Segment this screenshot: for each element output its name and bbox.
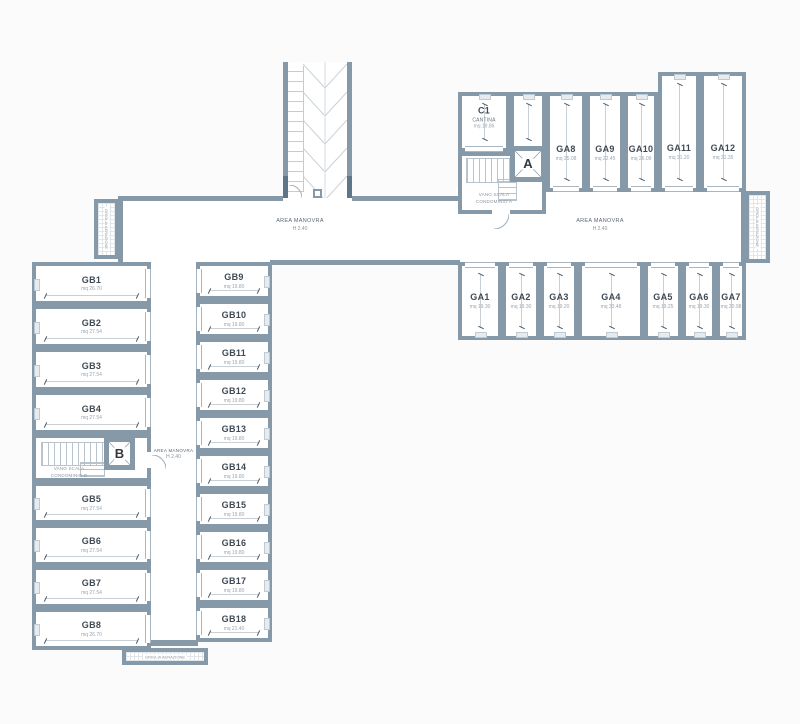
vent-mark [264, 618, 270, 630]
garage-door [145, 355, 151, 384]
room-label: GB6mq 27.54 [36, 536, 147, 554]
room-label: GA10mq 26.09 [628, 144, 654, 162]
dimension-line [45, 338, 138, 339]
garage-door [196, 345, 202, 369]
room-label: GB2mq 27.54 [36, 317, 147, 335]
garage-door [145, 531, 151, 559]
room-label: GB12mq 19.80 [200, 386, 268, 404]
corridor-label-left: AREA MANOVRA H 2.40 [240, 218, 360, 233]
garage-door [145, 573, 151, 601]
room-id: GB13 [200, 424, 268, 436]
garage-door [196, 497, 202, 521]
room-gb5: GB5mq 27.54 [32, 482, 151, 524]
stairwell-b: B VANO SCALA CONDOMINIO B [32, 434, 151, 482]
room-label: GA2mq 19.30 [506, 292, 536, 310]
garage-door [145, 489, 151, 517]
room-id: GB6 [36, 536, 147, 548]
dimension-line [209, 480, 259, 481]
room-label: GA11mq 31.20 [662, 143, 696, 161]
room-area: mq 19.80 [200, 398, 268, 405]
ramp [288, 62, 347, 198]
room-label: C1CANTINAmq 19.86 [462, 105, 506, 130]
room-label: GB16mq 19.80 [200, 538, 268, 556]
room-ga4: GA4mq 33.48 [578, 262, 644, 340]
garage-door [196, 269, 202, 293]
room-id: GB18 [200, 614, 268, 626]
room-label: GB3mq 27.54 [36, 360, 147, 378]
vent-mark [523, 94, 535, 100]
dimension-line [209, 556, 259, 557]
dimension-line [209, 632, 259, 633]
room-area: mq 21.40 [200, 626, 268, 633]
room-ga7: GA7mq 20.98 [716, 262, 746, 340]
room-label: GA6mq 19.30 [686, 292, 712, 310]
room-id: GA4 [582, 292, 640, 304]
room-id: GA3 [544, 292, 574, 304]
room-id: GA1 [462, 292, 498, 304]
room-label: GB8mq 26.70 [36, 620, 147, 638]
ramp-wall-cap-right [347, 176, 352, 198]
room-area: mq 19.20 [544, 304, 574, 311]
vent-mark [34, 408, 40, 420]
room-id: GB3 [36, 360, 147, 372]
room-area: mq 19.86 [462, 124, 506, 131]
room-gb15: GB15mq 19.80 [196, 490, 272, 528]
vent-mark [674, 74, 686, 80]
room-label: GA4mq 33.48 [582, 292, 640, 310]
garage-door [651, 262, 675, 268]
room-area: mq 27.54 [36, 548, 147, 555]
corridor-top-wall-east [352, 196, 458, 201]
floor-plan: GRIGLIA AERAZIONE GRIGLIA AERAZIONE GRIG… [0, 0, 800, 724]
vent-mark [264, 390, 270, 402]
room-id: GA9 [590, 144, 620, 156]
garage-door [196, 535, 202, 559]
vent-mark [264, 580, 270, 592]
vent-mark [34, 279, 40, 291]
dimension-line [528, 104, 529, 140]
room-label: GB10mq 19.80 [200, 310, 268, 328]
dimension-line [605, 104, 606, 180]
room-label: GB5mq 27.54 [36, 494, 147, 512]
room-label: GB14mq 19.80 [200, 462, 268, 480]
corridor-bottom-wall-centre [270, 260, 460, 265]
dimension-line [679, 84, 680, 180]
room-gb1: GB1mq 26.70 [32, 262, 151, 305]
elevator-b-letter: B [114, 446, 125, 459]
room-label: GB9mq 19.80 [200, 272, 268, 290]
room-label: GA9mq 22.45 [590, 144, 620, 162]
room-ga5: GA5mq 19.25 [644, 262, 682, 340]
room-id: GB11 [200, 348, 268, 360]
vent-mark [34, 540, 40, 552]
room-label: GB4mq 27.54 [36, 403, 147, 421]
dimension-line [209, 366, 259, 367]
vent-mark [264, 466, 270, 478]
vent-mark [34, 365, 40, 377]
dimension-line [209, 594, 259, 595]
garage-door [196, 421, 202, 445]
room-id: GA10 [628, 144, 654, 156]
garage-door [707, 186, 739, 192]
vent-mark [479, 94, 491, 100]
room-area: mq 31.35 [704, 155, 742, 162]
room-id: GA6 [686, 292, 712, 304]
room-area: mq 19.80 [200, 322, 268, 329]
room-gb10: GB10mq 19.80 [196, 300, 272, 338]
vent-mark [264, 428, 270, 440]
room-id: GB14 [200, 462, 268, 474]
garage-door [631, 186, 651, 192]
garage-door [593, 186, 617, 192]
room-label: GB1mq 26.70 [36, 274, 147, 292]
room-label: GB17mq 19.80 [200, 576, 268, 594]
room-gb12: GB12mq 19.80 [196, 376, 272, 414]
room-label: GA7mq 20.98 [720, 292, 742, 310]
room-gb2: GB2mq 27.54 [32, 305, 151, 348]
room-id: GB9 [200, 272, 268, 284]
room-area: mq 19.80 [200, 550, 268, 557]
grille-west-label: GRIGLIA AERAZIONE [104, 207, 109, 251]
room-id: GA8 [550, 144, 582, 156]
corridor-top-wall-west [118, 196, 283, 201]
garage-door [553, 186, 579, 192]
elevator-b: B [104, 437, 135, 470]
room-gb14: GB14mq 19.80 [196, 452, 272, 490]
garage-door [196, 573, 202, 597]
room-area: mq 26.70 [36, 632, 147, 639]
grille-east-label: GRIGLIA AERAZIONE [755, 205, 760, 249]
dimension-line [641, 104, 642, 180]
room-area: mq 27.54 [36, 506, 147, 513]
room-area: mq 19.80 [200, 360, 268, 367]
garage-door [509, 262, 533, 268]
room-id: C1 [462, 105, 506, 117]
room-gb8: GB8mq 26.70 [32, 608, 151, 650]
room-id: GB17 [200, 576, 268, 588]
vent-mark [34, 498, 40, 510]
corridor-label-right: AREA MANOVRA H 2.40 [540, 218, 660, 233]
stairwell-b-door-arc [152, 455, 166, 469]
room-label: GA12mq 31.35 [704, 143, 742, 161]
ramp-pillar [313, 189, 322, 198]
garage-door [145, 615, 151, 643]
vent-mark [34, 322, 40, 334]
dimension-line [209, 290, 259, 291]
vent-mark [726, 332, 738, 338]
room-id: GB1 [36, 274, 147, 286]
vent-mark [606, 332, 618, 338]
dimension-line [45, 424, 138, 425]
garage-door [196, 307, 202, 331]
room-gb6: GB6mq 27.54 [32, 524, 151, 566]
dimension-line [45, 295, 138, 296]
room-ga11: GA11mq 31.20 [658, 72, 700, 192]
dimension-line [723, 84, 724, 180]
garage-door [196, 611, 202, 635]
dimension-line [209, 328, 259, 329]
dimension-line [45, 556, 138, 557]
room-gb18: GB18mq 21.40 [196, 604, 272, 642]
room-area: mq 26.70 [36, 286, 147, 293]
vent-mark [658, 332, 670, 338]
dimension-line [209, 404, 259, 405]
room-area: mq 19.80 [200, 436, 268, 443]
grille-east: GRIGLIA AERAZIONE [745, 191, 770, 263]
room-area: mq 20.98 [720, 304, 742, 311]
room-ga2: GA2mq 19.30 [502, 262, 540, 340]
grille-south: GRIGLIA AERAZIONE [122, 648, 208, 665]
room-area: mq 27.54 [36, 329, 147, 336]
vent-mark [554, 332, 566, 338]
room-c1: C1CANTINAmq 19.86 [458, 92, 510, 152]
grille-west: GRIGLIA AERAZIONE [94, 199, 119, 259]
garage-door [145, 312, 151, 341]
stairwell-a-door-arc [494, 214, 509, 229]
dimension-line [209, 518, 259, 519]
room-area: mq 31.20 [662, 155, 696, 162]
vent-mark [561, 94, 573, 100]
room-id: GA11 [662, 143, 696, 155]
corridor-vertical-bottom-wall [149, 640, 198, 646]
room-area: mq 19.30 [506, 304, 536, 311]
vent-mark [34, 624, 40, 636]
room-label: GA1mq 19.30 [462, 292, 498, 310]
room-id: GA7 [720, 292, 742, 304]
garage-door [547, 262, 571, 268]
room-area: mq 25.08 [550, 156, 582, 163]
room-id: GB8 [36, 620, 147, 632]
dimension-line [566, 104, 567, 180]
room-area: mq 19.25 [648, 304, 678, 311]
garage-door [665, 186, 693, 192]
room-area: mq 19.30 [462, 304, 498, 311]
room-id: GA12 [704, 143, 742, 155]
room-id: GA5 [648, 292, 678, 304]
room-area: mq 19.80 [200, 474, 268, 481]
dimension-line [45, 514, 138, 515]
room-label: GB15mq 19.80 [200, 500, 268, 518]
vent-mark [600, 94, 612, 100]
vent-mark [264, 314, 270, 326]
vent-mark [636, 94, 648, 100]
ramp-stair-hatch [288, 66, 304, 192]
room-gb16: GB16mq 19.80 [196, 528, 272, 566]
room-label: GB18mq 21.40 [200, 614, 268, 632]
vent-mark [264, 276, 270, 288]
garage-door [585, 262, 637, 268]
room-ga10: GA10mq 26.09 [624, 92, 658, 192]
garage-door [196, 383, 202, 407]
room-area: mq 19.80 [200, 284, 268, 291]
stairwell-a-label: VANO SCALA CONDOMINIO A [464, 192, 524, 206]
vent-mark [475, 332, 487, 338]
vent-mark [264, 542, 270, 554]
room-area: mq 22.45 [590, 156, 620, 163]
room-ga3: GA3mq 19.20 [540, 262, 578, 340]
garage-door [145, 269, 151, 298]
room-gb13: GB13mq 19.80 [196, 414, 272, 452]
room-area: mq 27.54 [36, 372, 147, 379]
room-label: GA5mq 19.25 [648, 292, 678, 310]
garage-door [689, 262, 709, 268]
garage-door [465, 262, 495, 268]
room-id: GB7 [36, 578, 147, 590]
dimension-line [209, 442, 259, 443]
room-area: mq 27.54 [36, 415, 147, 422]
vent-mark [34, 582, 40, 594]
room-id: GA2 [506, 292, 536, 304]
elevator-a-letter: A [522, 157, 533, 170]
ramp-door-arc [289, 185, 302, 198]
room-label: GA8mq 25.08 [550, 144, 582, 162]
garage-door [145, 398, 151, 427]
garage-door [196, 459, 202, 483]
room-id: GB12 [200, 386, 268, 398]
room-id: GB5 [36, 494, 147, 506]
room-label: GB7mq 27.54 [36, 578, 147, 596]
room-label: GA3mq 19.20 [544, 292, 574, 310]
ramp-wall-cap-left [283, 176, 288, 198]
room-id: GB15 [200, 500, 268, 512]
vent-mark [264, 352, 270, 364]
room-ga9: GA9mq 22.45 [586, 92, 624, 192]
room-id: GB16 [200, 538, 268, 550]
room-area: mq 19.80 [200, 512, 268, 519]
room-gb17: GB17mq 19.80 [196, 566, 272, 604]
room-label: GB11mq 19.80 [200, 348, 268, 366]
dimension-line [45, 640, 138, 641]
room-gb4: GB4mq 27.54 [32, 391, 151, 434]
garage-door [723, 262, 739, 268]
room-id: GB2 [36, 317, 147, 329]
room-area: mq 26.09 [628, 156, 654, 163]
room-gb11: GB11mq 19.80 [196, 338, 272, 376]
room-ga6: GA6mq 19.30 [682, 262, 716, 340]
room-area: mq 27.54 [36, 590, 147, 597]
room-id: GB10 [200, 310, 268, 322]
room-area: mq 33.48 [582, 304, 640, 311]
dimension-line [45, 381, 138, 382]
room-unlabeled [510, 92, 546, 152]
room-label: GB13mq 19.80 [200, 424, 268, 442]
stairwell-b-label: VANO SCALA CONDOMINIO B [38, 466, 100, 480]
room-id: GB4 [36, 403, 147, 415]
vent-mark [694, 332, 706, 338]
vent-mark [264, 504, 270, 516]
grille-south-label: GRIGLIA AERAZIONE [143, 654, 187, 659]
room-area: mq 19.80 [200, 588, 268, 595]
room-gb7: GB7mq 27.54 [32, 566, 151, 608]
vent-mark [516, 332, 528, 338]
room-ga8: GA8mq 25.08 [546, 92, 586, 192]
room-ga12: GA12mq 31.35 [700, 72, 746, 192]
dimension-line [45, 598, 138, 599]
vent-mark [718, 74, 730, 80]
room-ga1: GA1mq 19.30 [458, 262, 502, 340]
elevator-a: A [510, 146, 546, 182]
room-gb3: GB3mq 27.54 [32, 348, 151, 391]
room-gb9: GB9mq 19.80 [196, 262, 272, 300]
room-area: mq 19.30 [686, 304, 712, 311]
